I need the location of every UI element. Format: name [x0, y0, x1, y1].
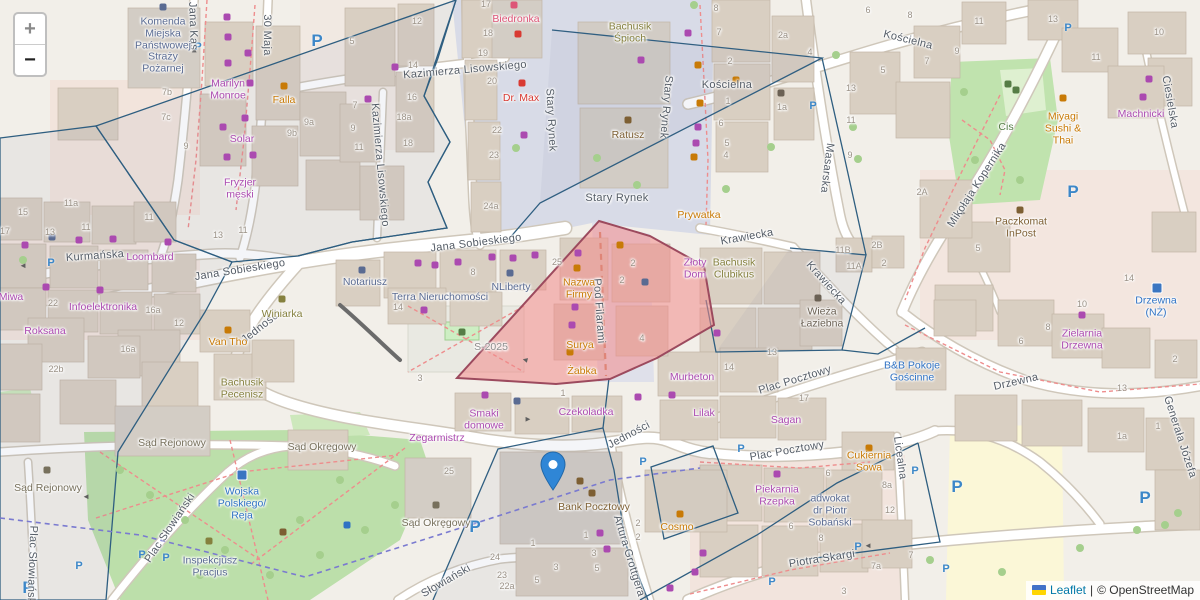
clothes-icon — [1146, 76, 1153, 83]
house-number: 9a — [304, 117, 314, 127]
basket-icon — [76, 237, 83, 244]
house-number: 8a — [882, 480, 892, 490]
street-label: Krawiecka — [720, 226, 775, 247]
tree-icon — [633, 181, 641, 189]
house-number: 2 — [881, 258, 886, 268]
house-number: 7 — [924, 56, 929, 66]
music-icon — [667, 585, 674, 592]
tree-icon — [832, 51, 840, 59]
poi-label: Cis — [998, 122, 1013, 134]
tree-icon — [316, 551, 324, 559]
street-label: Kazimierza Lisowskiego — [369, 103, 392, 228]
house-number: 3 — [417, 373, 422, 383]
clothes-icon — [575, 250, 582, 257]
scales-icon — [433, 502, 440, 509]
poi-label: Van Tho — [209, 337, 248, 349]
poi-label: Winiarka — [262, 309, 303, 321]
poi-label: Dr. Max — [503, 93, 539, 105]
house-number: 7a — [871, 561, 881, 571]
house-number: 18a — [396, 112, 411, 122]
dot-icon — [160, 4, 167, 11]
winery-icon — [279, 296, 286, 303]
house-number: 4 — [807, 47, 812, 57]
street-label: Drzewna — [992, 371, 1039, 393]
parking-icon: P — [162, 552, 169, 564]
house-number: 1 — [1155, 421, 1160, 431]
runner-icon — [459, 329, 466, 336]
house-number: 8 — [470, 267, 475, 277]
tree-icon — [512, 144, 520, 152]
house-number: 5 — [975, 243, 980, 253]
house-number: 10 — [1077, 299, 1087, 309]
house-number: 9 — [350, 123, 355, 133]
house-number: 23 — [489, 150, 499, 160]
house-number: 2A — [916, 187, 927, 197]
playground-icon — [1013, 87, 1020, 94]
house-number: 11B — [835, 245, 850, 255]
house-number: 6 — [718, 118, 723, 128]
house-number: 13 — [45, 227, 55, 237]
fountain-icon — [344, 522, 351, 529]
poi-label: Roksana — [24, 326, 65, 338]
poi-label: Cosmo — [660, 522, 693, 534]
poi-label: Paczkomat InPost — [995, 216, 1047, 240]
house-number: 6 — [865, 5, 870, 15]
poi-label: Wieża Łaziebna — [801, 306, 844, 330]
house-number: 4 — [723, 150, 728, 160]
bus-stop-icon — [237, 470, 248, 481]
memorial-icon — [280, 529, 287, 536]
house-number: 13 — [1117, 383, 1127, 393]
tree-icon — [391, 501, 399, 509]
house-number: 22 — [48, 298, 58, 308]
poi-label: Notariusz — [343, 277, 387, 289]
house-number: 1 — [583, 530, 588, 540]
bakery-icon — [774, 471, 781, 478]
house-number: 25 — [552, 257, 562, 267]
dot-icon — [572, 304, 579, 311]
house-number: 7c — [161, 112, 171, 122]
parking-icon: P — [469, 517, 480, 537]
clothes-icon — [225, 34, 232, 41]
florist-icon — [638, 57, 645, 64]
jewelry-icon — [165, 239, 172, 246]
books-icon — [365, 96, 372, 103]
house-number: 2 — [635, 518, 640, 528]
clothes-icon — [455, 259, 462, 266]
house-number: 3 — [591, 548, 596, 558]
tree-icon — [116, 466, 124, 474]
cafe-icon — [691, 154, 698, 161]
poi-label: Smaki domowe — [464, 408, 504, 432]
house-number: 19 — [478, 48, 488, 58]
camera-icon — [695, 124, 702, 131]
house-number: 11 — [238, 225, 247, 235]
house-number: 18 — [483, 28, 493, 38]
poi-label: Machnicki — [1118, 109, 1165, 121]
tree-icon — [361, 526, 369, 534]
poi-label: Loombard — [126, 252, 173, 264]
house-number: 13 — [213, 230, 223, 240]
restaurant-icon — [225, 327, 232, 334]
poi-label: Piekarnia Rzepka — [755, 484, 799, 508]
parking-icon: P — [951, 477, 962, 497]
poi-label: Fryzjer męski — [224, 177, 256, 201]
house-number: 11 — [974, 16, 983, 26]
shoes-icon — [415, 260, 422, 267]
house-number: 2 — [1172, 354, 1177, 364]
tree-icon — [1016, 176, 1024, 184]
street-label: Masarska — [818, 142, 836, 193]
poi-label: Sagan — [771, 415, 801, 427]
street-label: Kościelna — [882, 28, 934, 52]
tree-icon — [593, 154, 601, 162]
statue-icon — [206, 538, 213, 545]
house-number: 22 — [492, 125, 502, 135]
cafe-icon — [574, 265, 581, 272]
poi-label: Infoelektronika — [69, 302, 137, 314]
house-number: 8 — [1045, 322, 1050, 332]
house-number: 24 — [490, 552, 500, 562]
restaurant-icon — [281, 83, 288, 90]
sewing-icon — [1140, 94, 1147, 101]
house-number: 17 — [0, 226, 10, 236]
poi-label: Surya — [566, 340, 593, 352]
leaflet-link[interactable]: Leaflet — [1050, 583, 1086, 597]
house-number: 11A — [846, 261, 861, 271]
house-number: 8 — [907, 10, 912, 20]
house-number: 11 — [846, 115, 855, 125]
mail-icon — [577, 478, 584, 485]
bus-stop-icon — [1152, 283, 1163, 294]
dot-icon — [507, 270, 514, 277]
house-number: 8 — [818, 533, 823, 543]
poi-label: Sąd Okręgowy — [288, 442, 357, 454]
house-number: 7 — [716, 27, 721, 37]
poi-label: S-2025 — [474, 342, 508, 354]
house-number: 11a — [64, 198, 78, 208]
map-canvas[interactable]: 7b7c99b12141618a18579a91117181920222324a… — [0, 0, 1200, 600]
house-number: 15 — [18, 207, 28, 217]
books-icon — [521, 132, 528, 139]
street-label: Kościelna — [702, 79, 752, 91]
house-number: 25 — [444, 466, 454, 476]
poi-label: Murbeton — [670, 372, 714, 384]
poi-label: Inspekcjusz Pracjus — [183, 555, 238, 579]
attribution-separator: | — [1090, 583, 1093, 597]
house-number: 2 — [635, 532, 640, 542]
tree-icon — [926, 556, 934, 564]
poi-label: Ratusz — [612, 130, 645, 142]
parking-icon: P — [1064, 22, 1071, 34]
poi-label: Bachusik Pecenisz — [221, 377, 264, 401]
poi-label: Prywatka — [677, 210, 720, 222]
clothes-icon — [247, 80, 254, 87]
house-number: 9 — [183, 141, 188, 151]
house-number: 2 — [727, 56, 732, 66]
house-number: 20 — [487, 76, 497, 86]
house-number: 24a — [483, 201, 498, 211]
tree-icon — [767, 143, 775, 151]
herbalist-icon — [1079, 312, 1086, 319]
house-number: 9 — [954, 46, 959, 56]
attribution-bar: Leaflet | © OpenStreetMap — [1026, 581, 1200, 600]
bike-icon — [700, 550, 707, 557]
poi-label: Falla — [273, 95, 296, 107]
house-number: 2 — [630, 258, 635, 268]
poi-label: Sąd Okręgowy — [402, 518, 471, 530]
dot-icon — [359, 267, 366, 274]
parking-icon: P — [1067, 182, 1078, 202]
poi-label: Czekoladka — [559, 407, 614, 419]
dot-icon — [514, 398, 521, 405]
street-label: Ciesielska — [1159, 75, 1180, 129]
tree-icon — [1161, 521, 1169, 529]
one-way-arrow-icon: ► — [82, 493, 90, 502]
parking-icon: P — [854, 541, 861, 553]
playground-icon — [1005, 81, 1012, 88]
house-number: 2B — [871, 240, 882, 250]
umbrella-icon — [714, 330, 721, 337]
house-number: 1 — [530, 538, 535, 548]
poi-label: adwokat dr Piotr Sobański — [808, 493, 851, 528]
tree-icon — [690, 1, 698, 9]
poi-label: Sąd Rejonowy — [14, 483, 82, 495]
restaurant-icon — [695, 62, 702, 69]
house-number: 17 — [799, 393, 809, 403]
street-label: 30 Maja — [261, 14, 273, 55]
house-number: 10 — [1154, 27, 1164, 37]
house-number: 3 — [841, 586, 846, 596]
house-number: 4 — [639, 333, 644, 343]
house-number: 18 — [403, 138, 413, 148]
clothes-icon — [250, 152, 257, 159]
house-number: 22b — [48, 364, 63, 374]
street-label: Generała Józefa — [1161, 395, 1199, 480]
pharmacy-icon — [519, 80, 526, 87]
one-way-arrow-icon: ► — [520, 355, 530, 366]
dot-icon — [510, 255, 517, 262]
optician-icon — [43, 284, 50, 291]
parking-icon: P — [911, 465, 918, 477]
clothes-icon — [532, 252, 539, 259]
street-label: Jana Sobieskiego — [194, 257, 286, 283]
tree-icon — [336, 476, 344, 484]
dot-icon — [97, 287, 104, 294]
street-label: Piotra Skargi — [788, 548, 856, 570]
restaurant-icon — [1060, 95, 1067, 102]
house-number: 1a — [1117, 431, 1127, 441]
camera-icon — [604, 546, 611, 553]
zoom-in-button[interactable]: + — [15, 14, 45, 45]
poi-label: Miyagi Sushi & Thai — [1045, 111, 1081, 146]
tree-icon — [221, 546, 229, 554]
poi-label: NLiberty — [491, 282, 530, 294]
townhall-icon — [625, 117, 632, 124]
tower-icon — [815, 295, 822, 302]
street-label: Stary Rynek — [543, 88, 558, 152]
parking-icon: P — [737, 443, 744, 455]
parking-icon: P — [942, 563, 949, 575]
clothes-icon — [635, 394, 642, 401]
atm-icon — [589, 490, 596, 497]
map-marker-pin[interactable] — [540, 451, 566, 496]
house-number: 13 — [1048, 14, 1058, 24]
clothes-icon — [225, 60, 232, 67]
house-number: 7 — [352, 100, 357, 110]
house-number: 11 — [354, 142, 363, 152]
poi-label: Terra Nieruchomości — [392, 292, 488, 304]
poi-label: Zielarnia Drzewna — [1061, 328, 1102, 352]
parking-icon: P — [311, 31, 322, 51]
poi-label: Bachusik Śpioch — [609, 21, 652, 45]
poi-label: Złoty Dom — [684, 257, 707, 281]
restaurant-icon — [617, 242, 624, 249]
scales-icon — [44, 467, 51, 474]
house-number: 6 — [825, 468, 830, 478]
pharmacy-icon — [515, 31, 522, 38]
tree-icon — [854, 155, 862, 163]
parking-icon: P — [809, 100, 816, 112]
tree-icon — [722, 185, 730, 193]
label-layer: 7b7c99b12141618a18579a91117181920222324a… — [0, 0, 1200, 600]
house-number: 5 — [724, 138, 729, 148]
street-label: Plac Słowiański — [25, 525, 40, 600]
house-number: 1 — [560, 388, 565, 398]
house-number: 5 — [534, 575, 539, 585]
house-number: 5 — [349, 36, 354, 46]
restaurant-icon — [677, 511, 684, 518]
house-number: 12 — [174, 318, 184, 328]
poi-label: Wojska Polskiego/ Reja — [218, 486, 266, 521]
one-way-arrow-icon: ► — [19, 262, 27, 271]
one-way-arrow-icon: ► — [864, 542, 872, 551]
house-number: 12 — [412, 16, 422, 26]
poi-label: Cukiernia Sowa — [847, 450, 891, 474]
openstreetmap-link[interactable]: © OpenStreetMap — [1097, 583, 1194, 597]
supermarket-cart-icon — [511, 2, 518, 9]
tree-icon — [998, 568, 1006, 576]
poi-label: B&B Pokoje Gościnne — [884, 360, 940, 384]
crown-icon — [693, 140, 700, 147]
poi-label: Zegarmistrz — [409, 433, 464, 445]
street-label: Plac Pocztowy — [757, 363, 833, 397]
house-number: 7 — [908, 550, 913, 560]
parking-icon: P — [75, 560, 82, 572]
house-number: 23 — [497, 570, 507, 580]
house-number: 6 — [788, 521, 793, 531]
parking-icon: P — [639, 456, 646, 468]
poi-label: Bank Pocztowy — [558, 502, 630, 514]
tree-icon — [1174, 509, 1182, 517]
parking-icon: P — [1139, 488, 1150, 508]
poi-label: Biedronka — [492, 14, 539, 26]
clothes-icon — [242, 115, 249, 122]
house-number: 2 — [619, 275, 624, 285]
zoom-control: + − — [13, 12, 47, 77]
house-number: 13 — [846, 83, 856, 93]
tree-icon — [971, 156, 979, 164]
clothes-icon — [224, 154, 231, 161]
jewelry-icon — [220, 124, 227, 131]
house-number: 11 — [144, 212, 153, 222]
video-icon — [597, 530, 604, 537]
clothes-icon — [245, 50, 252, 57]
street-label: Artura Grottgera — [611, 514, 647, 598]
cafe-icon — [22, 242, 29, 249]
poi-label: Lilak — [693, 408, 715, 420]
tree-icon — [146, 491, 154, 499]
furniture-icon — [110, 236, 117, 243]
tree-icon — [1076, 544, 1084, 552]
house-number: 11 — [81, 222, 90, 232]
parking-icon: P — [768, 576, 775, 588]
street-label: Krawiecka — [804, 259, 849, 307]
poi-label: Nazwa Firmy — [563, 277, 595, 301]
street-label: Słowiański — [419, 562, 473, 600]
house-number: 1a — [777, 102, 787, 112]
house-number: 17 — [481, 0, 491, 9]
poi-label: Drzewna (NŻ) — [1135, 295, 1176, 319]
tree-icon — [960, 88, 968, 96]
poi-label: Solar — [230, 134, 255, 146]
house-number: 8 — [713, 3, 718, 13]
poi-label: Miwa — [0, 292, 23, 304]
dot-icon — [669, 392, 676, 399]
street-label: Jana Sobieskiego — [430, 231, 522, 254]
books-icon — [392, 64, 399, 71]
house-number: 11 — [1091, 52, 1100, 62]
gift-icon — [569, 322, 576, 329]
poi-label: Żabka — [567, 366, 596, 378]
furniture-icon — [421, 307, 428, 314]
street-label: Jedności — [606, 419, 652, 451]
house-number: 14 — [1124, 273, 1134, 283]
poi-label: Marilyn Monroe — [210, 78, 246, 102]
house-number: 9 — [847, 150, 852, 160]
crown-icon — [482, 392, 489, 399]
tree-icon — [296, 516, 304, 524]
street-label: Plac Pocztowy — [749, 439, 825, 464]
clothes-icon — [224, 14, 231, 21]
tree-icon — [1133, 526, 1141, 534]
street-label: Stary Rynek — [657, 75, 674, 139]
street-label: Kurmańska — [65, 248, 124, 264]
zoom-out-button[interactable]: − — [15, 45, 45, 75]
parcel-locker-icon — [1017, 207, 1024, 214]
tree-icon — [266, 571, 274, 579]
house-number: 16 — [407, 92, 417, 102]
street-label: Kazimierza Lisowskiego — [403, 59, 528, 82]
house-number: 6 — [1018, 336, 1023, 346]
house-number: 5 — [880, 65, 885, 75]
house-number: 3 — [553, 562, 558, 572]
street-label: Stary Rynek — [585, 192, 648, 204]
one-way-arrow-icon: ► — [524, 415, 532, 424]
house-number: 14 — [724, 362, 734, 372]
street-label: Licealna — [891, 436, 909, 481]
house-number: 7b — [162, 87, 172, 97]
house-number: 22a — [499, 581, 514, 591]
poi-label: Bachusik Clubikus — [713, 257, 756, 281]
bag-icon — [489, 254, 496, 261]
hairdresser-icon — [685, 30, 692, 37]
bakery-icon — [432, 262, 439, 269]
dot-icon — [642, 279, 649, 286]
house-number: 1 — [725, 96, 730, 106]
house-number: 9b — [287, 128, 297, 138]
house-number: 13 — [767, 347, 777, 357]
